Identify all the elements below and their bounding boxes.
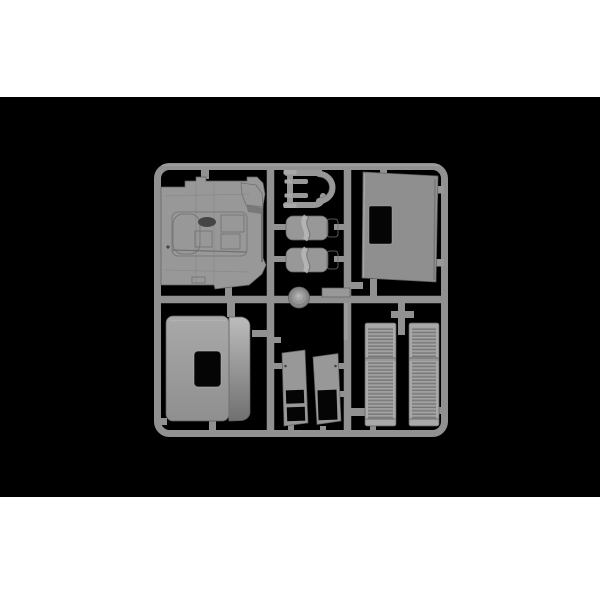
divider-sheen — [344, 303, 348, 340]
pipe-stub — [292, 179, 308, 184]
roof-side-strip — [229, 317, 250, 421]
opening-upper — [286, 390, 304, 404]
product-image — [0, 0, 600, 600]
part-door-card-left — [282, 350, 308, 426]
dome-tip-highlight — [297, 295, 300, 298]
pipe-stub — [292, 193, 308, 198]
pipe-flange — [284, 204, 297, 209]
seat-back-curve — [304, 216, 307, 240]
floor-base — [161, 177, 266, 289]
part-door-card-right — [313, 354, 341, 425]
window-opening — [369, 206, 392, 244]
part-cab-floor — [161, 177, 266, 289]
pin-mark — [334, 365, 337, 368]
seat-back-curve — [304, 248, 307, 272]
panel-right-shadow — [434, 179, 435, 280]
part-roof-panel — [166, 316, 250, 421]
part-grille-left — [365, 323, 396, 426]
engine-cover-oval-recess — [198, 217, 216, 227]
pipe-flange — [284, 170, 297, 175]
panel-tab — [436, 259, 444, 267]
part-mount-plate — [322, 288, 350, 297]
pipe-stack — [287, 170, 293, 208]
floor-pin-mark — [166, 245, 169, 248]
part-rear-panel — [362, 172, 444, 282]
grille-ribs — [368, 327, 393, 419]
opening — [317, 390, 337, 421]
hatch-opening — [194, 351, 221, 387]
grille-ribs — [412, 327, 436, 419]
part-horn-dome — [289, 287, 310, 308]
product-photo-canvas — [0, 0, 600, 600]
part-grille-right — [409, 323, 439, 426]
pin-mark — [284, 365, 287, 368]
opening-lower — [287, 407, 305, 422]
